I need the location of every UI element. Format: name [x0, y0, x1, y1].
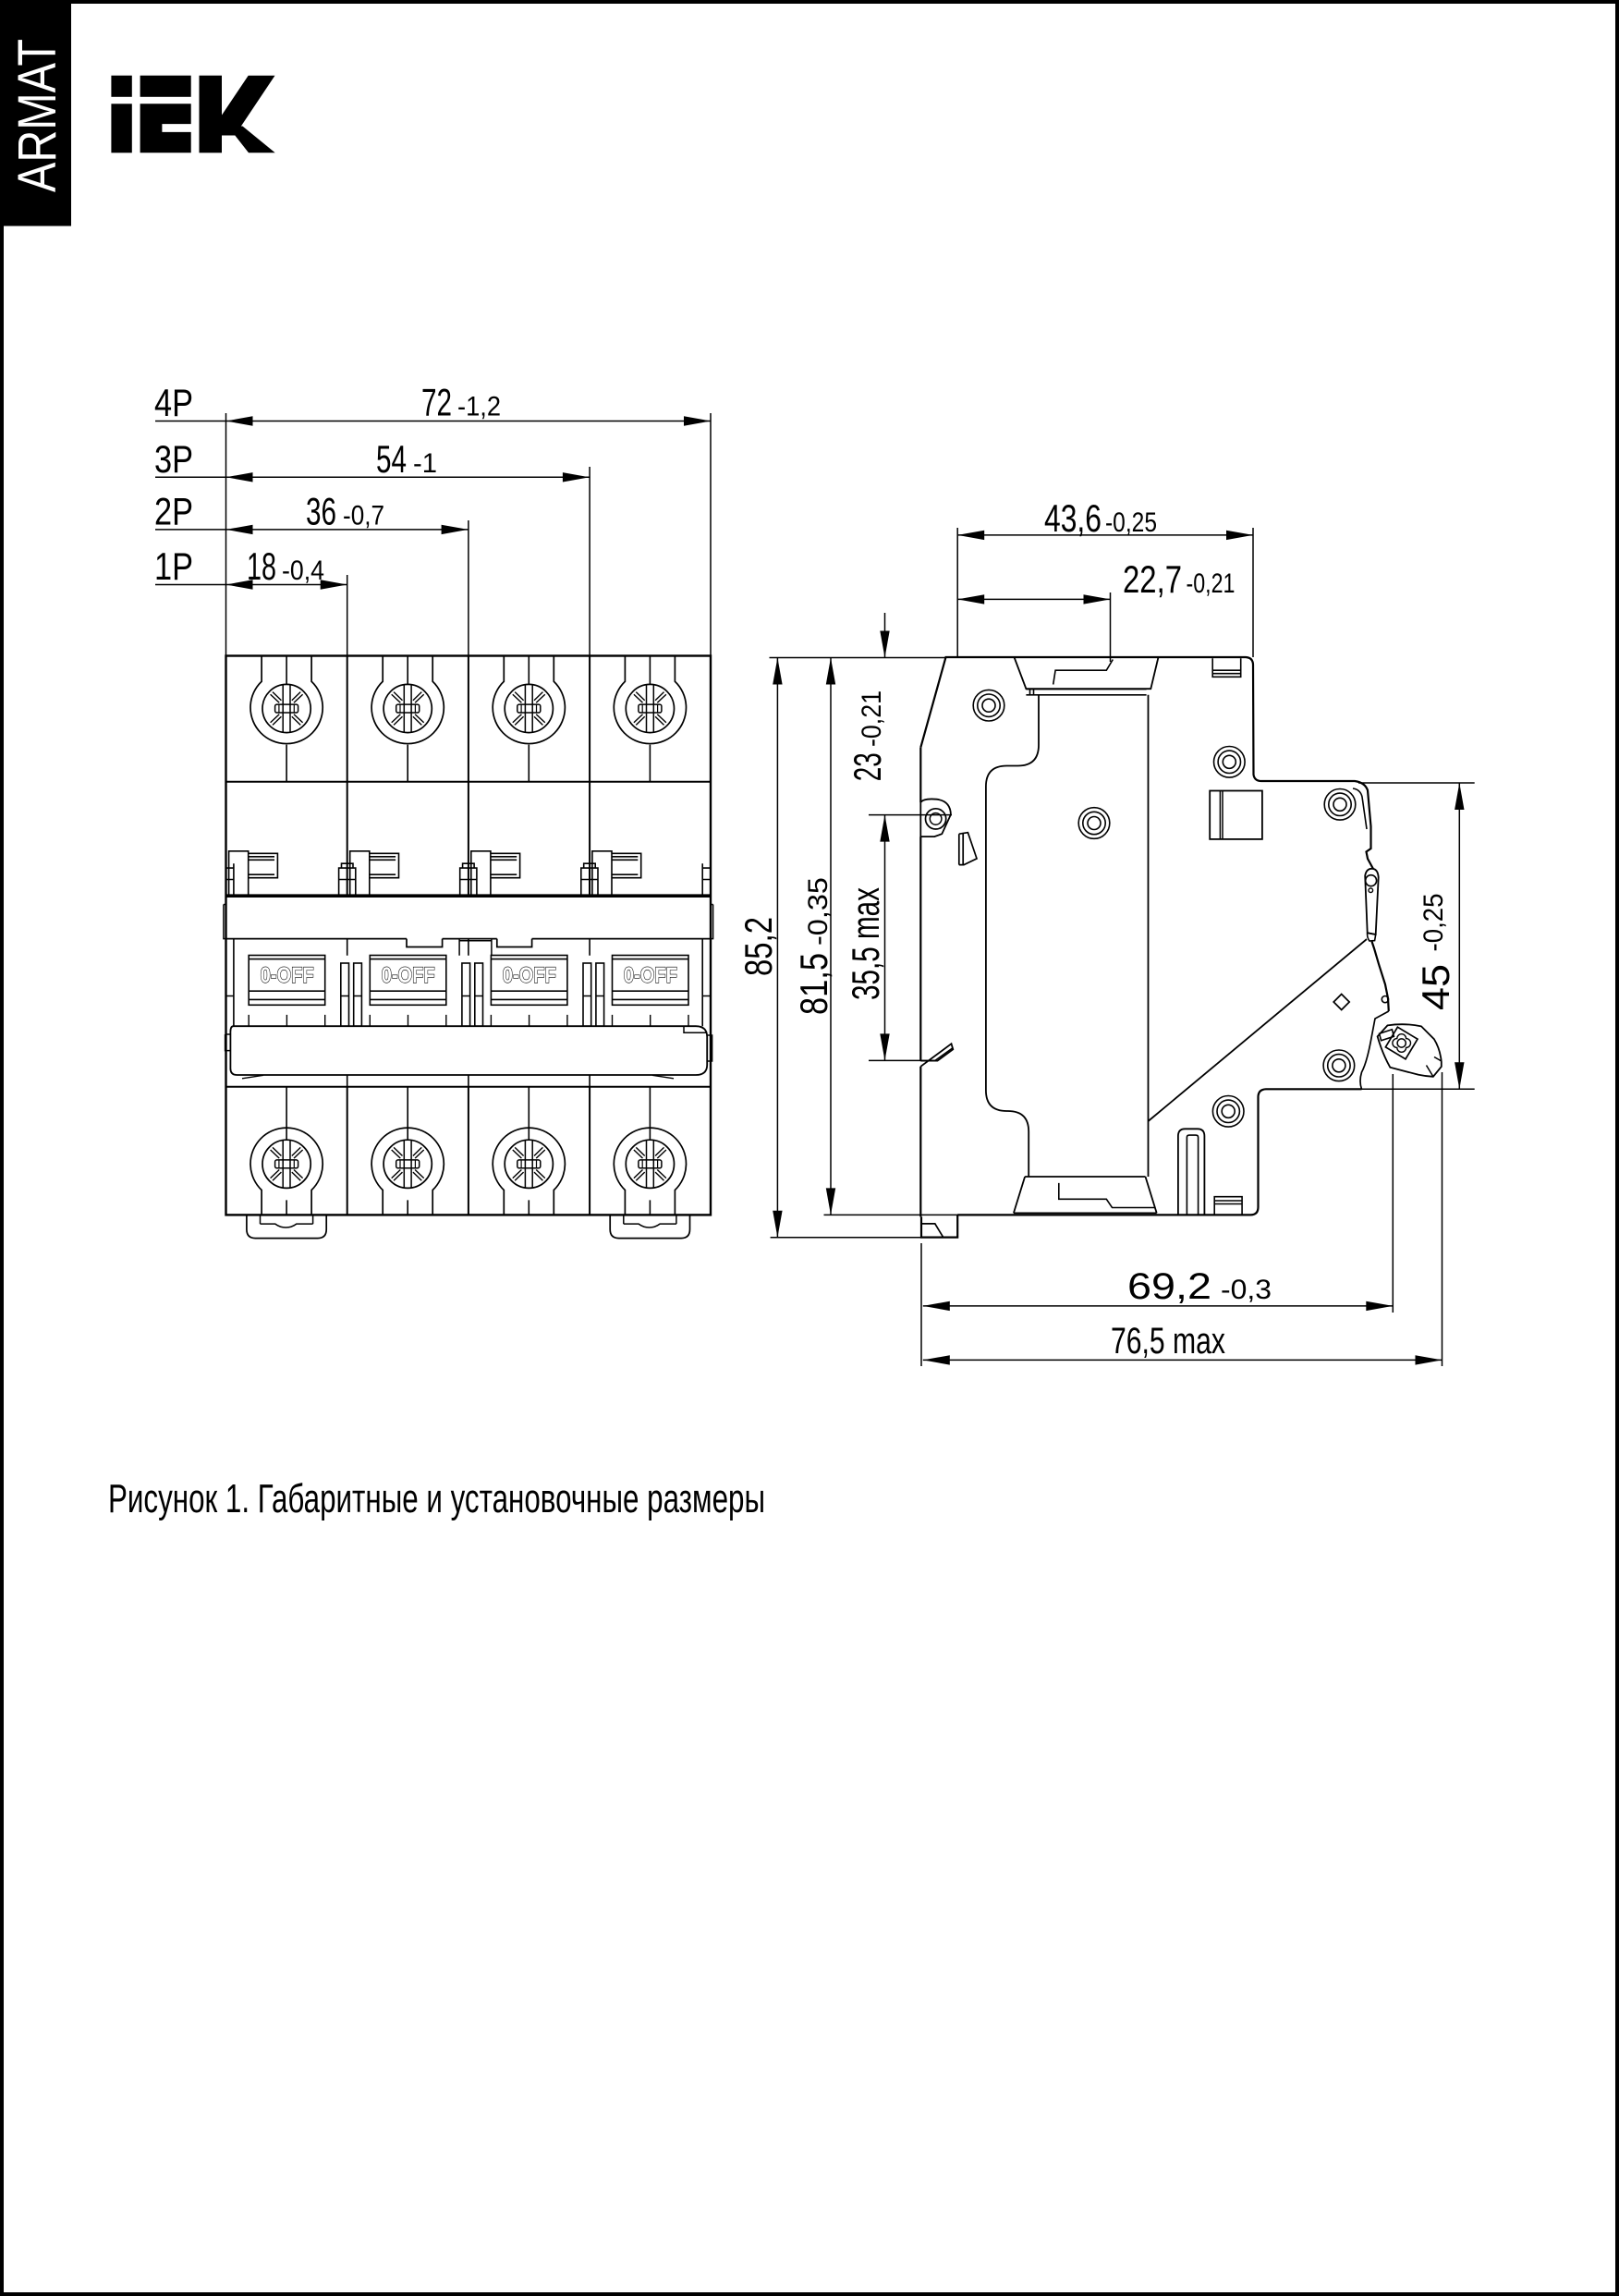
svg-text:0-OFF: 0-OFF [382, 963, 435, 988]
svg-text:72: 72 [421, 381, 452, 424]
svg-text:-0,4: -0,4 [282, 556, 324, 586]
svg-text:35,5 max: 35,5 max [844, 887, 887, 1000]
svg-text:-0,21: -0,21 [857, 690, 887, 747]
svg-text:3P: 3P [154, 437, 193, 481]
svg-text:22,7: 22,7 [1123, 557, 1182, 601]
svg-text:-0,21: -0,21 [1187, 568, 1236, 599]
svg-text:43,6: 43,6 [1044, 496, 1102, 540]
svg-text:45: 45 [1414, 964, 1457, 1010]
svg-text:1P: 1P [154, 544, 193, 588]
svg-text:69,2: 69,2 [1127, 1266, 1211, 1307]
svg-text:0-OFF: 0-OFF [503, 963, 556, 988]
svg-text:2P: 2P [154, 489, 193, 532]
svg-text:-0,25: -0,25 [1418, 894, 1449, 952]
svg-text:4P: 4P [154, 381, 193, 424]
svg-text:54: 54 [376, 437, 407, 481]
svg-text:76,5 max: 76,5 max [1111, 1321, 1225, 1362]
svg-text:Рисунок 1. Габаритные и устано: Рисунок 1. Габаритные и установочные раз… [108, 1476, 765, 1521]
svg-text:ARMAT: ARMAT [7, 39, 67, 192]
svg-text:23: 23 [846, 752, 889, 781]
svg-text:-0,25: -0,25 [1105, 507, 1157, 538]
svg-text:85,2: 85,2 [736, 917, 780, 976]
svg-text:36: 36 [306, 489, 336, 532]
svg-text:-0,7: -0,7 [343, 500, 384, 531]
svg-text:-0,3: -0,3 [1221, 1275, 1272, 1305]
svg-text:18: 18 [247, 544, 276, 588]
svg-text:81,5: 81,5 [792, 953, 835, 1015]
svg-text:-1,2: -1,2 [457, 392, 501, 422]
svg-text:0-OFF: 0-OFF [261, 963, 314, 988]
svg-text:-1: -1 [413, 448, 437, 479]
svg-text:-0,35: -0,35 [803, 877, 834, 946]
svg-text:0-OFF: 0-OFF [624, 963, 677, 988]
